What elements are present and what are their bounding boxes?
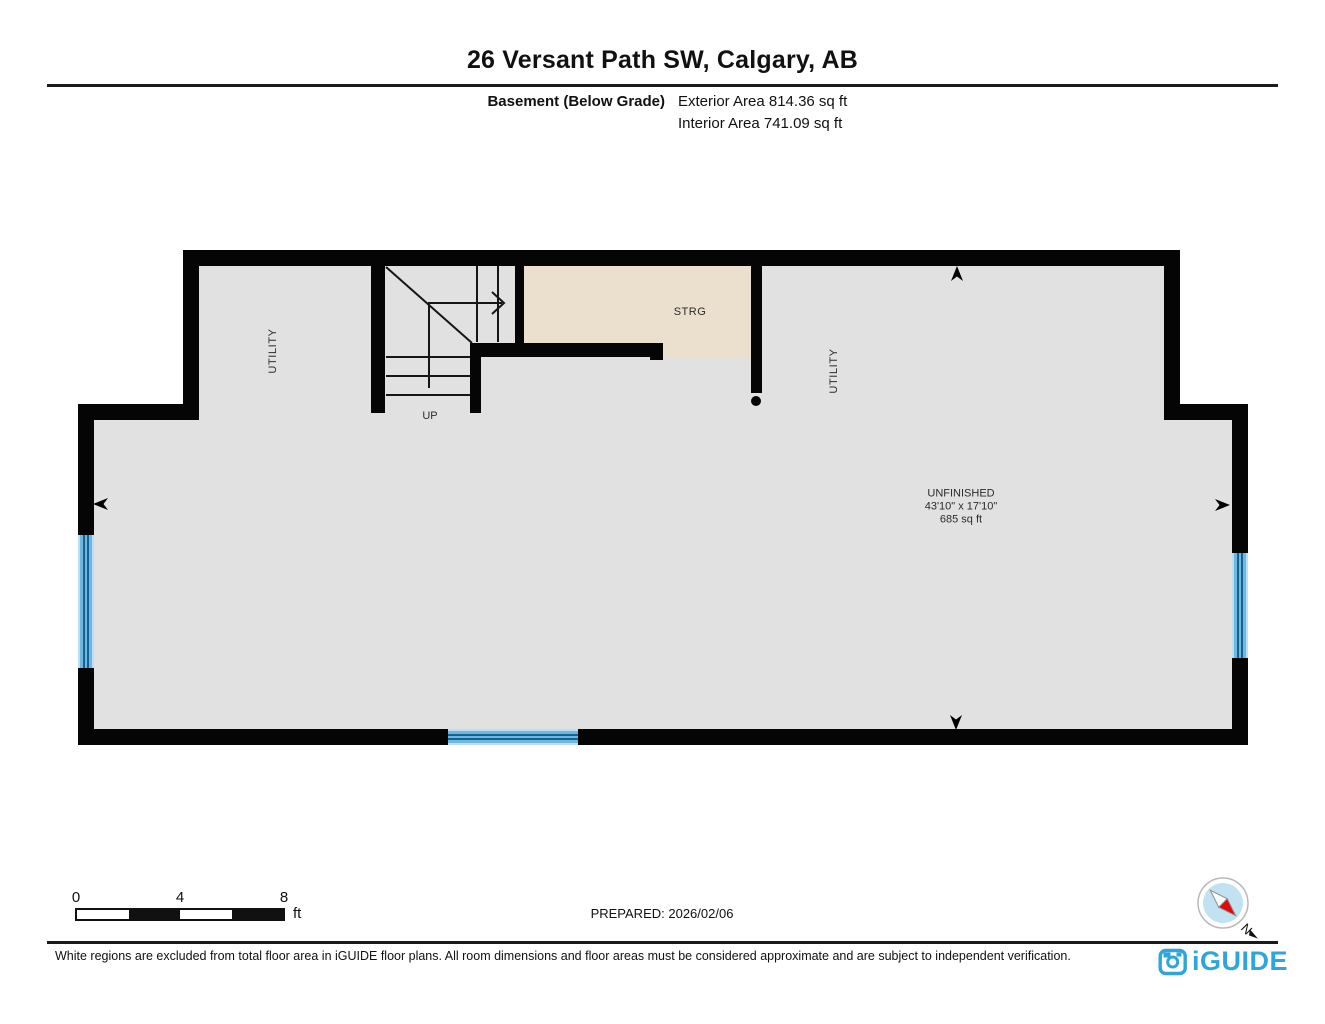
wall-storage-right — [751, 266, 762, 393]
wall-storage-left — [515, 266, 524, 343]
scale-tick-8: 8 — [280, 889, 288, 906]
scale-unit-label: ft — [293, 905, 301, 922]
scale-segment — [129, 910, 181, 919]
scale-tick-4: 4 — [176, 889, 184, 906]
floor-plan: UTILITY UTILITY STRG UP UNFINISHED 43'10… — [0, 0, 1325, 1024]
utility-right-label: UTILITY — [828, 348, 840, 393]
floor-fill-main — [86, 412, 1240, 737]
window-left — [78, 535, 94, 668]
unfinished-room-info: UNFINISHED 43'10" x 17'10" 685 sq ft — [925, 488, 998, 527]
footer-divider — [47, 941, 1278, 944]
wall-top — [183, 250, 1180, 266]
unfinished-room-area: 685 sq ft — [925, 513, 998, 526]
wall-upper-right — [1164, 250, 1180, 420]
iguide-logo-text: iGUIDE — [1192, 946, 1288, 977]
unfinished-room-dimensions: 43'10" x 17'10" — [925, 501, 998, 514]
scale-segment — [232, 910, 284, 919]
wall-upper-left — [183, 250, 199, 412]
wall-below-storage-endcap — [650, 343, 663, 360]
scale-tick-0: 0 — [72, 889, 80, 906]
scale-segment — [180, 910, 232, 919]
iguide-logo: iGUIDE — [1158, 946, 1288, 977]
scale-segment — [77, 910, 129, 919]
utility-left-label: UTILITY — [267, 328, 279, 373]
wall-stair-left — [371, 250, 385, 413]
stairs-up-label: UP — [422, 410, 437, 422]
scale-bar — [75, 908, 285, 921]
wall-below-storage — [470, 343, 663, 357]
storage-area-fill-opening — [663, 343, 751, 357]
disclaimer-text: White regions are excluded from total fl… — [55, 949, 1071, 963]
unfinished-room-name: UNFINISHED — [925, 488, 998, 501]
wall-bottom — [78, 729, 1248, 745]
window-right — [1232, 553, 1248, 658]
column-dot — [751, 396, 761, 406]
prepared-date: PREPARED: 2026/02/06 — [512, 906, 812, 921]
window-bottom — [448, 729, 578, 745]
storage-area-fill — [524, 266, 751, 343]
compass-icon: N — [1193, 873, 1265, 945]
iguide-camera-icon — [1158, 947, 1188, 977]
storage-label: STRG — [674, 306, 707, 318]
wall-left-step — [78, 404, 199, 420]
